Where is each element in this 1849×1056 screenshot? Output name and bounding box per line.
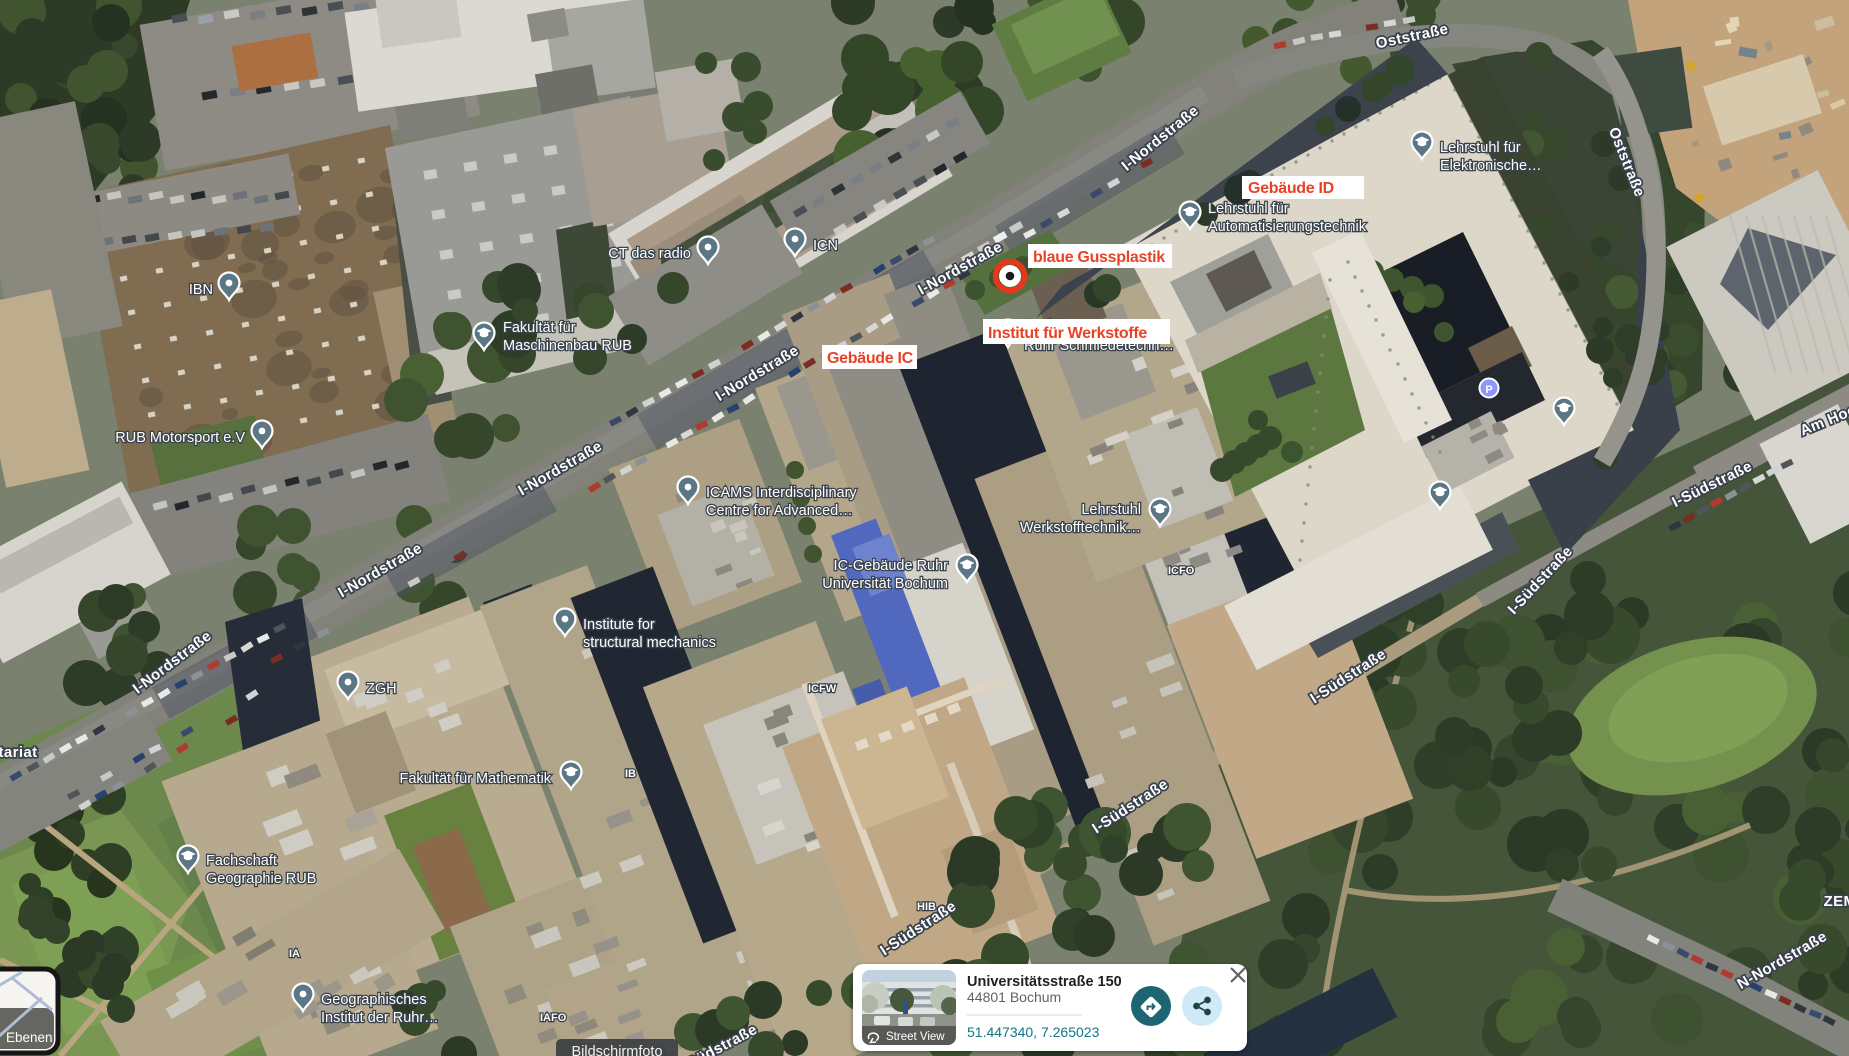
svg-text:Universität Bochum: Universität Bochum — [822, 576, 948, 592]
svg-text:RUB Motorsport e.V: RUB Motorsport e.V — [115, 430, 245, 446]
svg-text:Lehrstuhl für: Lehrstuhl für — [1440, 140, 1521, 156]
svg-text:Gebäude IC: Gebäude IC — [827, 350, 914, 367]
svg-text:44801 Bochum: 44801 Bochum — [967, 989, 1061, 1005]
svg-text:IA: IA — [289, 948, 300, 960]
svg-text:Ebenen: Ebenen — [6, 1030, 53, 1045]
svg-text:IAFO: IAFO — [540, 1012, 567, 1024]
svg-text:Lehrstuhl: Lehrstuhl — [1081, 502, 1141, 518]
svg-text:Street View: Street View — [886, 1031, 945, 1043]
svg-text:Geographie RUB: Geographie RUB — [206, 871, 316, 887]
svg-text:Fachschaft: Fachschaft — [206, 853, 277, 869]
svg-text:ICN: ICN — [813, 238, 838, 254]
svg-text:HIB: HIB — [917, 901, 936, 913]
svg-text:CT das radio: CT das radio — [608, 246, 691, 262]
svg-text:structural mechanics: structural mechanics — [583, 635, 716, 651]
svg-text:IBN: IBN — [189, 282, 213, 298]
svg-text:Universitätsstraße 150: Universitätsstraße 150 — [967, 974, 1122, 990]
svg-text:blaue Gussplastik: blaue Gussplastik — [1033, 249, 1165, 266]
svg-text:Geographisches: Geographisches — [321, 992, 427, 1008]
svg-text:Werkstofftechnik…: Werkstofftechnik… — [1020, 520, 1141, 536]
svg-text:Institut für Werkstoffe: Institut für Werkstoffe — [988, 325, 1147, 342]
svg-text:tariat: tariat — [0, 744, 38, 761]
svg-text:ZEM: ZEM — [1824, 893, 1849, 910]
svg-text:Fakultät für: Fakultät für — [503, 320, 576, 336]
svg-text:Maschinenbau RUB: Maschinenbau RUB — [503, 338, 632, 354]
svg-text:ICAMS Interdisciplinary: ICAMS Interdisciplinary — [706, 485, 857, 501]
svg-text:P: P — [1485, 384, 1492, 396]
svg-text:Automatisierungstechnik: Automatisierungstechnik — [1208, 219, 1367, 235]
svg-text:51.447340, 7.265023: 51.447340, 7.265023 — [967, 1024, 1100, 1040]
svg-text:ICFO: ICFO — [1168, 565, 1195, 577]
svg-text:IB: IB — [625, 768, 636, 780]
svg-text:Institute for: Institute for — [583, 617, 655, 633]
svg-text:Elektronische…: Elektronische… — [1440, 158, 1542, 174]
svg-text:Bildschirmfoto: Bildschirmfoto — [571, 1044, 662, 1056]
svg-text:IC-Gebäude Ruhr: IC-Gebäude Ruhr — [834, 558, 949, 574]
svg-text:Fakultät für Mathematik: Fakultät für Mathematik — [400, 771, 552, 787]
svg-text:Gebäude ID: Gebäude ID — [1248, 180, 1334, 197]
svg-text:Institut der Ruhr…: Institut der Ruhr… — [321, 1010, 439, 1026]
svg-text:Lehrstuhl für: Lehrstuhl für — [1208, 201, 1289, 217]
svg-text:ICFW: ICFW — [808, 683, 837, 695]
svg-text:ZGH: ZGH — [366, 681, 397, 697]
svg-text:Centre for Advanced…: Centre for Advanced… — [706, 503, 853, 519]
